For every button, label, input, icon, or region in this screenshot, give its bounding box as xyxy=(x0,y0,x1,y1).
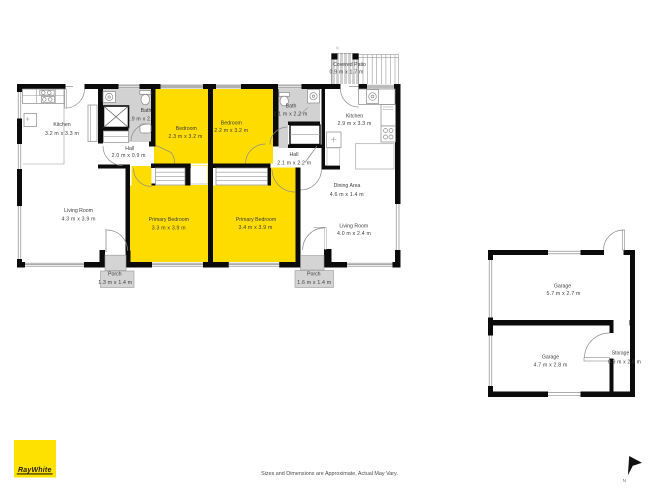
svg-text:3.4 m x 3.9 m: 3.4 m x 3.9 m xyxy=(238,225,272,231)
svg-text:Covered Patio: Covered Patio xyxy=(333,62,366,68)
svg-text:Primary Bedroom: Primary Bedroom xyxy=(236,217,276,223)
svg-text:Porch: Porch xyxy=(307,272,321,278)
svg-text:Bedroom: Bedroom xyxy=(221,121,242,127)
svg-text:3.3 m x 3.9 m: 3.3 m x 3.9 m xyxy=(152,226,186,232)
svg-text:Sizes and Dimensions are Appro: Sizes and Dimensions are Approximate, Ac… xyxy=(261,471,398,477)
svg-text:4.3 m x 3.9 m: 4.3 m x 3.9 m xyxy=(62,217,96,223)
svg-text:2.2 m x 3.2 m: 2.2 m x 3.2 m xyxy=(214,128,248,134)
svg-text:Garage: Garage xyxy=(554,283,571,289)
svg-text:Garage: Garage xyxy=(542,355,559,361)
svg-text:4.6 m x 1.4 m: 4.6 m x 1.4 m xyxy=(330,192,364,198)
svg-text:0.9 m x 2.8 m: 0.9 m x 2.8 m xyxy=(608,359,641,365)
svg-text:1.3 m x 1.4 m: 1.3 m x 1.4 m xyxy=(98,280,132,286)
svg-text:2.1 m x 2.2 m: 2.1 m x 2.2 m xyxy=(277,160,311,166)
svg-text:Living Room: Living Room xyxy=(64,208,93,214)
svg-text:2.9 m x 3.3 m: 2.9 m x 3.3 m xyxy=(337,121,371,127)
svg-text:Bath: Bath xyxy=(286,103,297,109)
svg-text:5.7 m x 2.7 m: 5.7 m x 2.7 m xyxy=(546,291,580,297)
svg-text:Kitchen: Kitchen xyxy=(53,122,70,128)
svg-text:RayWhite: RayWhite xyxy=(18,467,52,474)
svg-text:Hall: Hall xyxy=(125,146,134,152)
svg-text:Bath: Bath xyxy=(141,108,152,114)
svg-text:N: N xyxy=(336,46,339,51)
svg-text:3.2 m x 3.3 m: 3.2 m x 3.3 m xyxy=(45,131,79,137)
svg-text:4.0 m x 2.4 m: 4.0 m x 2.4 m xyxy=(337,231,371,237)
svg-text:Dining Area: Dining Area xyxy=(334,183,361,189)
svg-text:N: N xyxy=(623,478,626,483)
svg-text:2.1 m x 2.2 m: 2.1 m x 2.2 m xyxy=(273,112,307,118)
svg-text:0.9 m x 1.7 m: 0.9 m x 1.7 m xyxy=(329,70,363,76)
svg-text:Primary Bedroom: Primary Bedroom xyxy=(149,217,189,223)
svg-text:Living Room: Living Room xyxy=(339,224,368,230)
svg-text:2.3 m x 3.2 m: 2.3 m x 3.2 m xyxy=(168,134,202,140)
svg-text:Porch: Porch xyxy=(108,272,122,278)
svg-text:Hall: Hall xyxy=(290,152,299,158)
svg-text:4.7 m x 2.8 m: 4.7 m x 2.8 m xyxy=(533,363,567,369)
svg-text:2.0 m x 0.9 m: 2.0 m x 0.9 m xyxy=(112,153,146,159)
svg-text:Kitchen: Kitchen xyxy=(346,114,363,120)
svg-text:1.6 m x 1.4 m: 1.6 m x 1.4 m xyxy=(297,280,331,286)
svg-text:Storage: Storage xyxy=(612,350,630,356)
svg-text:Bedroom: Bedroom xyxy=(176,126,197,132)
